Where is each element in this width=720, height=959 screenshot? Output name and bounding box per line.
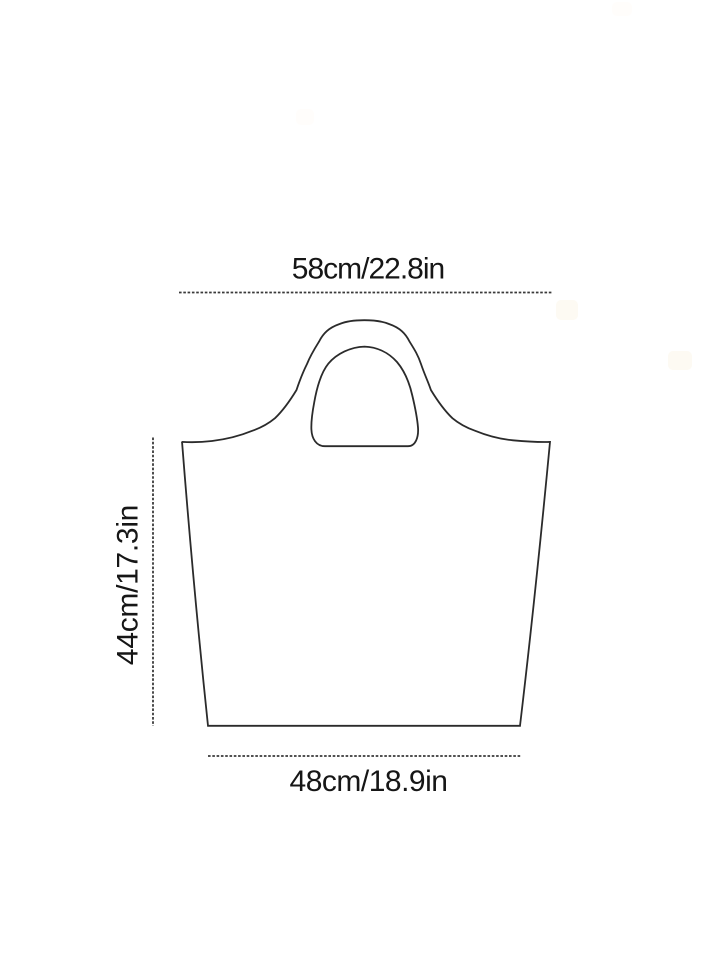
svg-text:48cm/18.9in: 48cm/18.9in [290, 765, 448, 798]
svg-text:58cm/22.8in: 58cm/22.8in [292, 253, 444, 286]
svg-text:44cm/17.3in: 44cm/17.3in [112, 505, 145, 665]
